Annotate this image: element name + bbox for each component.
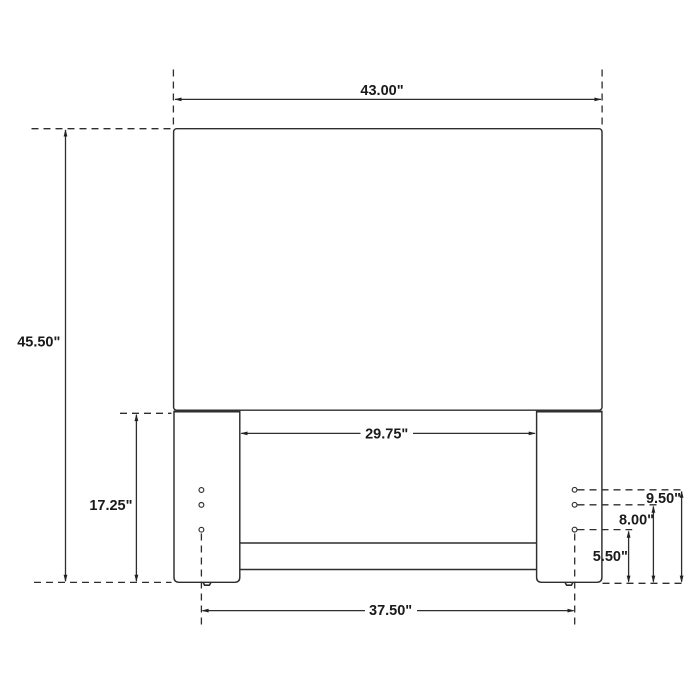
svg-text:9.50": 9.50" — [646, 491, 681, 507]
svg-text:5.50": 5.50" — [593, 549, 628, 565]
svg-text:43.00": 43.00" — [360, 83, 403, 99]
svg-text:37.50": 37.50" — [369, 603, 412, 619]
svg-text:45.50": 45.50" — [17, 335, 60, 351]
svg-text:29.75": 29.75" — [365, 427, 408, 443]
svg-text:8.00": 8.00" — [619, 513, 654, 529]
svg-text:17.25": 17.25" — [89, 498, 132, 514]
